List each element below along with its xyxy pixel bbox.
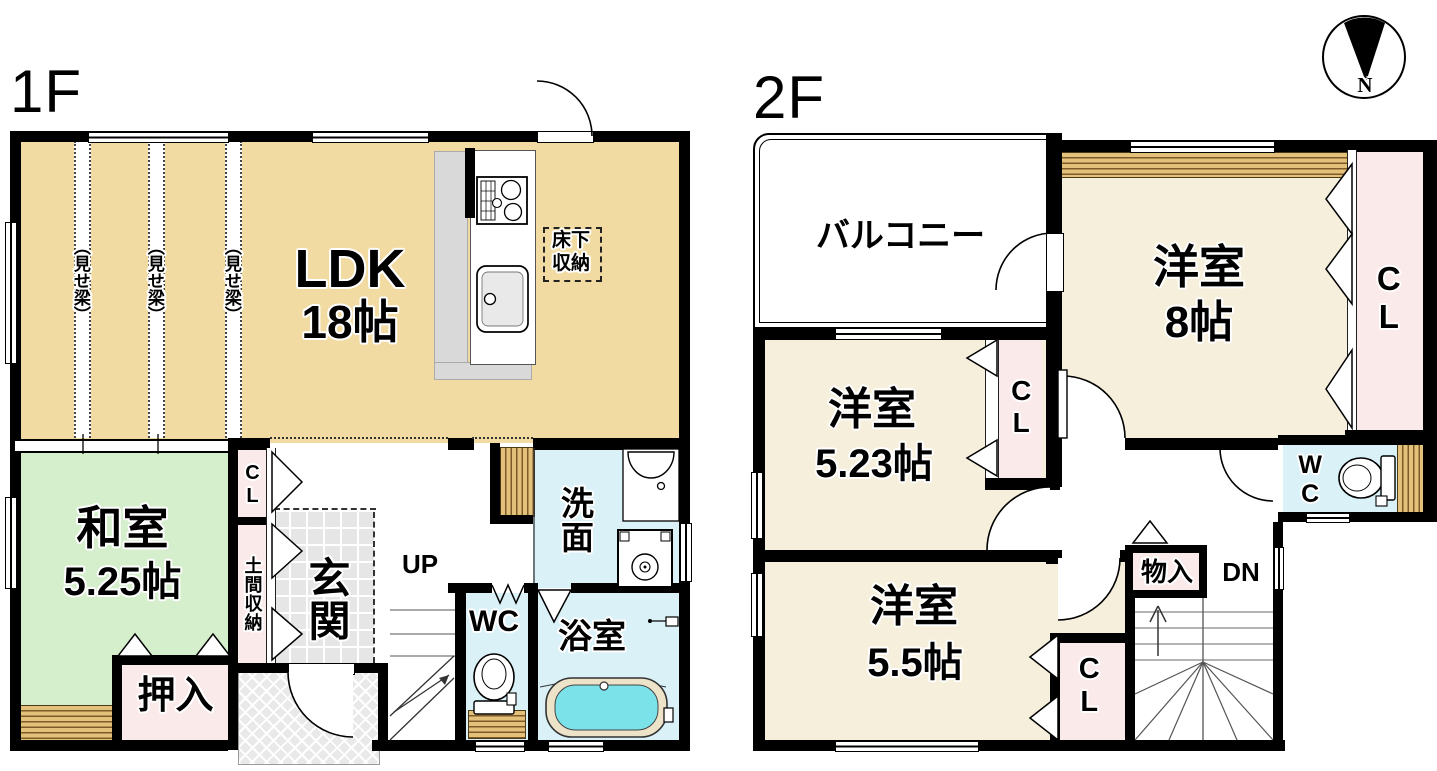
label-ldk-name: LDK xyxy=(270,240,430,298)
genkan-step-dashed xyxy=(373,512,378,663)
wall-segment xyxy=(1423,140,1437,522)
wall-segment xyxy=(465,148,475,218)
kitchen-counter xyxy=(470,150,536,365)
label-room8-size: 8帖 xyxy=(1150,298,1248,348)
label-balcony: バルコニー xyxy=(798,216,1003,258)
wall-segment xyxy=(112,655,122,750)
wall-segment xyxy=(1125,438,1278,450)
label-monoire: 物入 xyxy=(1136,558,1198,588)
stairs-1f xyxy=(390,610,455,740)
wall-segment xyxy=(524,583,538,593)
wall-segment xyxy=(753,550,1048,562)
wall-segment xyxy=(533,438,683,450)
label-closet-1f: CL xyxy=(238,455,266,515)
label-washitsu-size: 5.25帖 xyxy=(45,560,200,604)
label-wc-2f: WC xyxy=(1290,450,1330,510)
wall-segment xyxy=(448,583,492,593)
label-stairs-up: UP xyxy=(396,550,444,580)
floor-title-2f: 2F xyxy=(753,66,853,128)
window xyxy=(475,741,525,752)
compass-north-label: N xyxy=(1352,72,1378,98)
door-leaf-kitchen xyxy=(537,131,594,143)
room-8jo xyxy=(1060,152,1347,438)
wall-segment xyxy=(490,443,500,521)
kitchen-counter-edge xyxy=(434,151,468,380)
genkan-step-dashed xyxy=(274,508,376,513)
window xyxy=(1274,547,1284,590)
label-room55-name: 洋室 xyxy=(858,583,970,631)
label-exposed-beam: （見せ梁） xyxy=(140,220,168,340)
wall-segment xyxy=(753,740,1285,751)
floor-plan: 1F 2F LDK 18帖 （見せ梁） （見せ梁） （見せ梁） 床下収納 和室 … xyxy=(0,0,1437,771)
window xyxy=(680,523,692,582)
wood-strip-washitsu xyxy=(15,705,117,742)
label-closet-55jo: CL xyxy=(1072,648,1106,724)
label-washitsu-name: 和室 xyxy=(60,502,185,554)
wall-segment xyxy=(1278,512,1423,522)
window xyxy=(548,741,604,752)
label-oshiire: 押入 xyxy=(128,676,223,718)
closet-track xyxy=(1347,150,1357,430)
label-bath: 浴室 xyxy=(550,618,634,658)
wall-segment xyxy=(1046,133,1062,233)
wall-segment xyxy=(378,663,388,750)
door-leaf-balcony xyxy=(1046,233,1064,292)
closet-track xyxy=(985,340,999,478)
label-wc-1f: WC xyxy=(464,604,524,640)
sliding-partition xyxy=(15,439,228,453)
window xyxy=(835,741,979,752)
label-genkan: 玄関 xyxy=(302,546,350,651)
stairs-2f xyxy=(1135,598,1273,740)
window xyxy=(835,328,942,340)
wall-segment xyxy=(1120,550,1133,562)
label-doma-storage: 土間収納 xyxy=(238,530,266,658)
label-room55-size: 5.5帖 xyxy=(852,640,978,686)
wall-segment xyxy=(448,438,474,450)
window xyxy=(5,222,17,364)
window xyxy=(1130,141,1275,153)
wood-strip-wc1f xyxy=(468,710,526,739)
label-stairs-dn: DN xyxy=(1214,558,1268,588)
wood-strip-8jo xyxy=(1060,152,1348,178)
window xyxy=(751,573,763,637)
label-exposed-beam: （見せ梁） xyxy=(217,220,245,340)
wall-segment xyxy=(528,583,538,750)
label-closet-8jo: CL xyxy=(1368,258,1408,338)
wall-segment xyxy=(1050,633,1133,643)
room-bath xyxy=(538,593,683,740)
wall-segment xyxy=(571,583,690,593)
label-closet-523jo: CL xyxy=(1004,370,1038,444)
wall-segment xyxy=(1046,290,1062,487)
label-room523-size: 5.23帖 xyxy=(798,442,950,486)
wall-segment xyxy=(985,478,1060,490)
wall-segment xyxy=(1046,550,1062,564)
window xyxy=(751,472,763,539)
open-passage-dashed xyxy=(472,437,533,443)
floor-title-1f: 1F xyxy=(10,60,110,122)
window xyxy=(312,132,429,143)
wall-segment xyxy=(228,438,238,750)
wall-segment xyxy=(490,515,533,524)
window xyxy=(5,497,17,589)
wall-segment xyxy=(753,330,765,750)
window xyxy=(88,132,229,143)
closet-track xyxy=(266,448,276,663)
open-passage-dashed xyxy=(270,437,448,443)
wall-segment xyxy=(1046,438,1062,450)
label-ldk-size: 18帖 xyxy=(272,297,428,347)
wood-strip-wc2f xyxy=(1397,440,1425,515)
label-room523-name: 洋室 xyxy=(816,386,928,434)
wall-segment xyxy=(238,517,266,525)
door-leaf-entrance xyxy=(288,663,355,675)
wall-segment xyxy=(1125,598,1135,740)
label-exposed-beam: （見せ梁） xyxy=(66,220,94,340)
wood-cabinet-hall xyxy=(500,447,535,517)
label-senmen: 洗面 xyxy=(554,478,594,562)
wall-segment xyxy=(1278,435,1423,445)
label-underfloor-storage: 床下収納 xyxy=(546,229,596,277)
wall-segment xyxy=(112,655,238,665)
window xyxy=(1306,513,1350,523)
wall-segment xyxy=(1050,633,1060,740)
label-room8-name: 洋室 xyxy=(1140,242,1258,292)
entrance-porch xyxy=(238,663,380,765)
